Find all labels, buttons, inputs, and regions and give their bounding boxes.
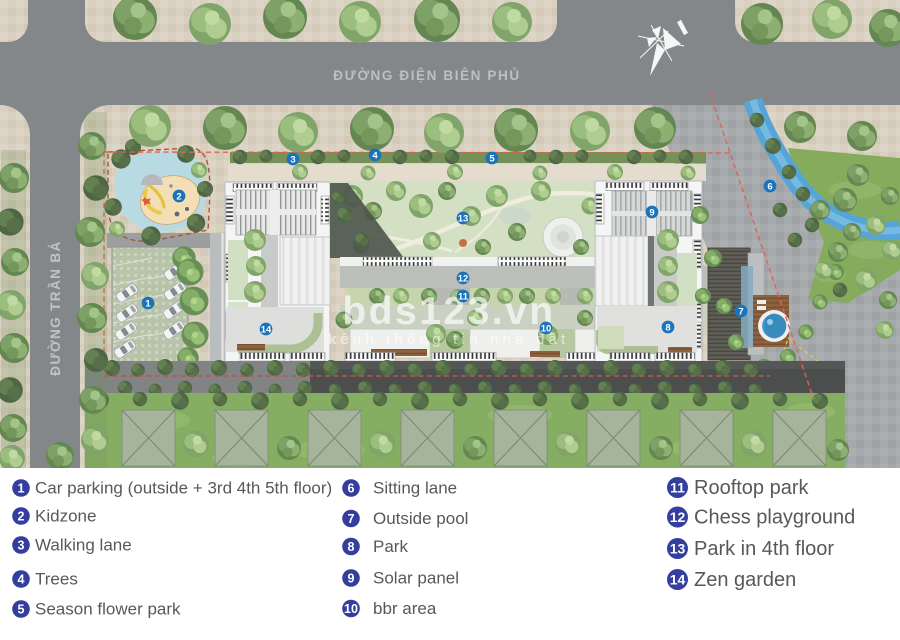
svg-text:6: 6 bbox=[767, 182, 772, 193]
svg-text:Solar panel: Solar panel bbox=[373, 569, 459, 588]
svg-text:12: 12 bbox=[458, 274, 469, 285]
svg-text:14: 14 bbox=[670, 572, 686, 588]
svg-text:Trees: Trees bbox=[35, 570, 78, 589]
svg-text:3: 3 bbox=[290, 155, 295, 166]
svg-text:2: 2 bbox=[176, 192, 181, 203]
svg-text:14: 14 bbox=[261, 325, 272, 336]
svg-text:4: 4 bbox=[18, 573, 25, 587]
svg-text:Kidzone: Kidzone bbox=[35, 507, 96, 526]
svg-text:Car parking (outside + 3rd 4th: Car parking (outside + 3rd 4th 5th floor… bbox=[35, 479, 332, 498]
svg-text:3: 3 bbox=[18, 539, 25, 553]
svg-text:Season flower park: Season flower park bbox=[35, 600, 181, 619]
svg-text:Walking lane: Walking lane bbox=[35, 536, 132, 555]
svg-text:10: 10 bbox=[344, 602, 358, 616]
svg-text:8: 8 bbox=[665, 323, 670, 334]
svg-text:13: 13 bbox=[458, 214, 469, 225]
svg-text:8: 8 bbox=[348, 540, 355, 554]
svg-text:bbr area: bbr area bbox=[373, 599, 437, 618]
svg-text:11: 11 bbox=[458, 292, 469, 303]
svg-text:9: 9 bbox=[649, 208, 654, 219]
svg-text:7: 7 bbox=[348, 512, 355, 526]
svg-text:9: 9 bbox=[348, 572, 355, 586]
svg-text:12: 12 bbox=[670, 509, 686, 525]
svg-text:4: 4 bbox=[372, 151, 378, 162]
svg-text:7: 7 bbox=[738, 307, 743, 318]
svg-text:2: 2 bbox=[18, 510, 25, 524]
svg-text:10: 10 bbox=[541, 324, 552, 335]
svg-text:Park: Park bbox=[373, 537, 408, 556]
svg-text:6: 6 bbox=[348, 482, 355, 496]
svg-text:11: 11 bbox=[670, 480, 685, 496]
svg-text:Outside pool: Outside pool bbox=[373, 509, 468, 528]
svg-text:Chess playground: Chess playground bbox=[694, 507, 855, 529]
svg-text:1: 1 bbox=[145, 299, 151, 310]
svg-text:1: 1 bbox=[18, 482, 25, 496]
svg-text:Zen garden: Zen garden bbox=[694, 569, 796, 591]
svg-text:Park in 4th floor: Park in 4th floor bbox=[694, 538, 834, 560]
svg-text:5: 5 bbox=[18, 603, 25, 617]
svg-text:5: 5 bbox=[489, 154, 495, 165]
svg-text:Rooftop park: Rooftop park bbox=[694, 477, 810, 499]
svg-text:Sitting lane: Sitting lane bbox=[373, 479, 457, 498]
svg-text:13: 13 bbox=[670, 541, 686, 557]
